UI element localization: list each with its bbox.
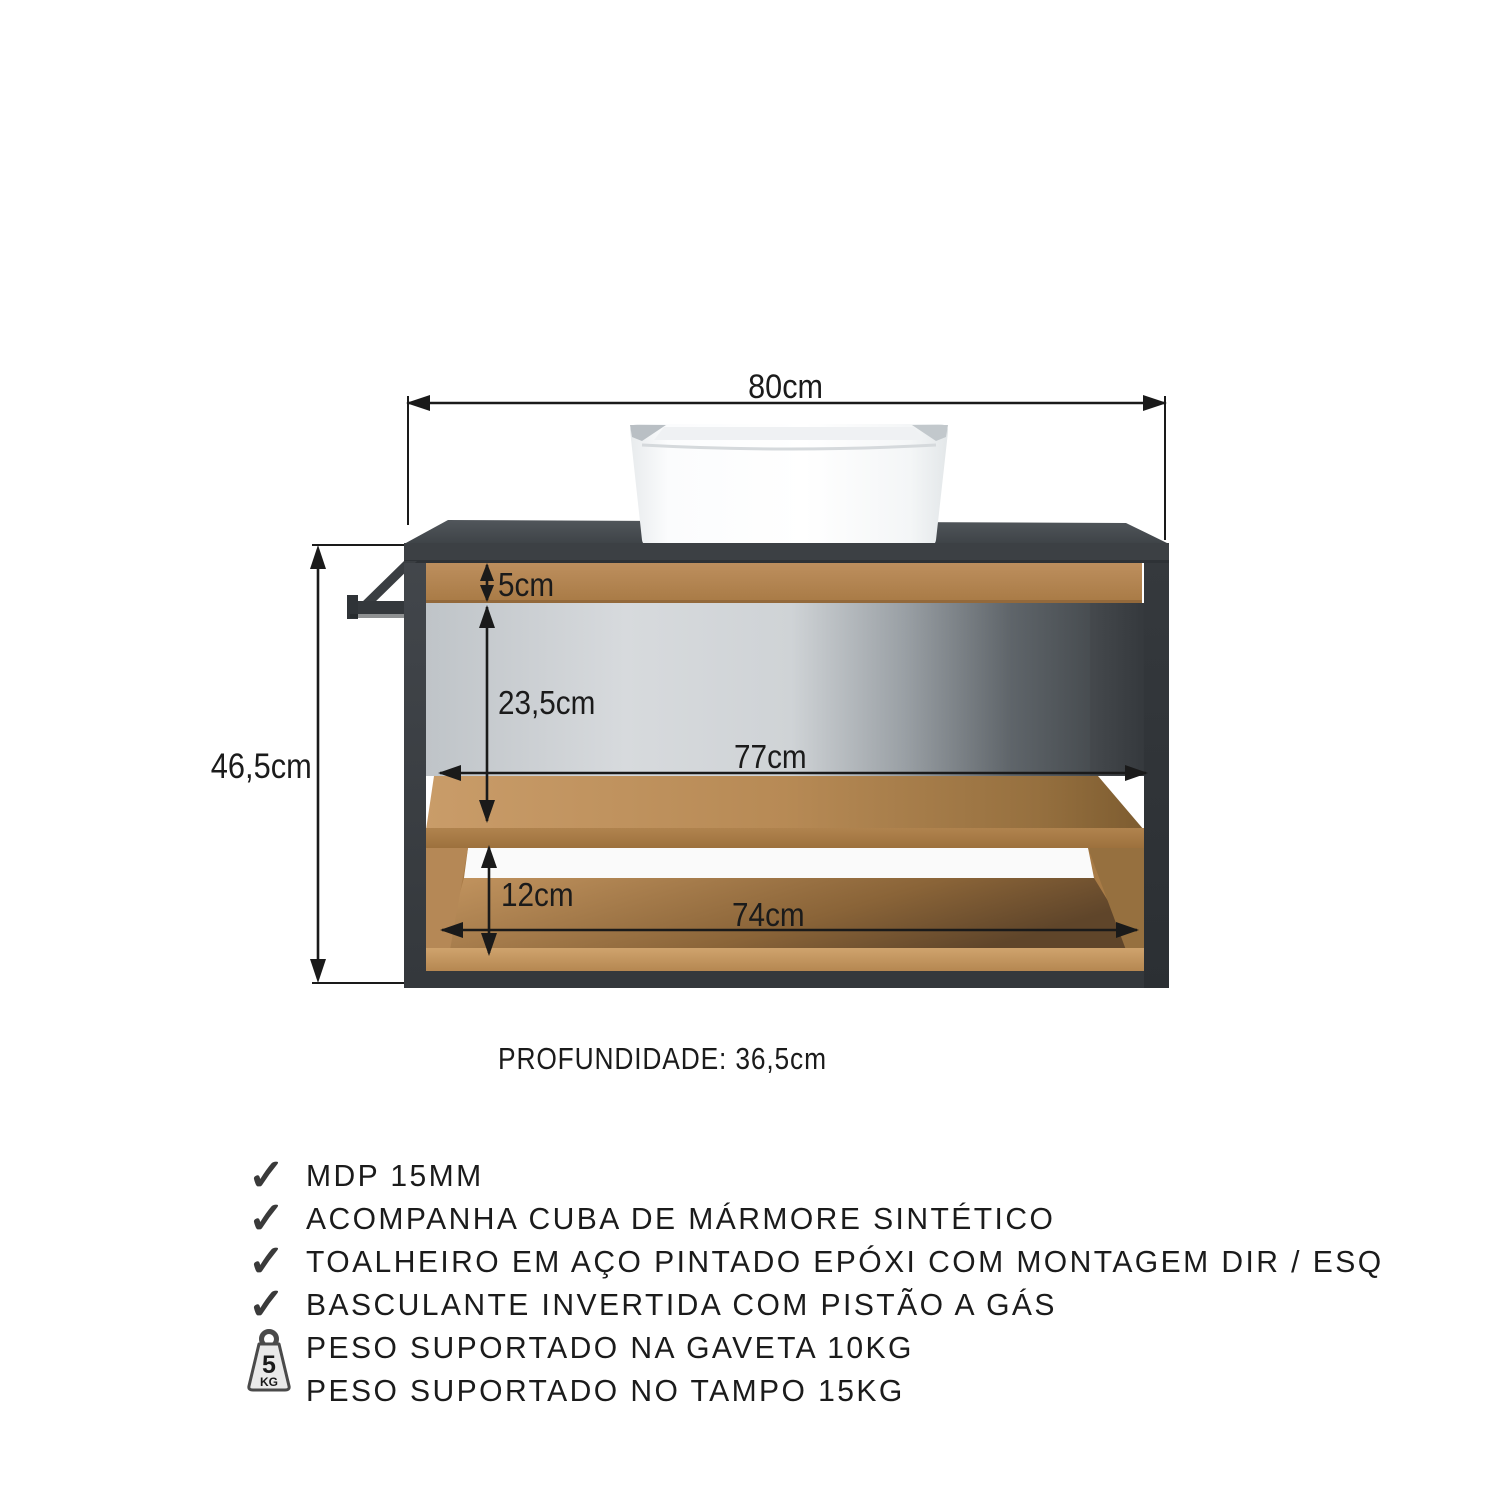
feature-item: PESO SUPORTADO NO TAMPO 15KG [248,1369,1417,1412]
dim-label-drawer-height: 5cm [498,566,560,604]
weight-icon: 5 KG [244,1329,294,1393]
depth-label: PROFUNDIDADE: 36,5cm [412,1041,912,1077]
dim-label-niche-height: 23,5cm [498,684,606,722]
bottom-gray-strip [404,971,1169,988]
towel-rack-shadow [350,614,408,618]
svg-text:KG: KG [260,1375,278,1389]
check-icon: ✓ [248,1199,306,1239]
sink-rim-inner [654,427,924,440]
dim-label-niche-width: 77cm [670,738,870,776]
sink-body [630,424,948,547]
feature-item: ✓ BASCULANTE INVERTIDA COM PISTÃO A GÁS [248,1283,1417,1326]
check-icon: ✓ [248,1242,306,1282]
feature-label: MDP 15MM [306,1158,484,1194]
countertop-front-edge [404,560,1169,563]
dim-label-width-top: 80cm [686,368,886,407]
right-side-panel [1144,563,1169,988]
product-dimension-infographic: 80cm 46,5cm 5cm 23,5cm 77cm 12cm 74cm PR… [0,0,1500,1500]
dim-label-height-left: 46,5cm [152,747,312,787]
left-side-panel [404,563,426,988]
feature-item: ✓ ACOMPANHA CUBA DE MÁRMORE SINTÉTICO [248,1197,1417,1240]
feature-item: ✓ MDP 15MM [248,1154,1417,1197]
feature-label: BASCULANTE INVERTIDA COM PISTÃO A GÁS [306,1287,1057,1323]
feature-label: ACOMPANHA CUBA DE MÁRMORE SINTÉTICO [306,1201,1055,1237]
dim-label-lower-niche-height: 12cm [501,876,582,914]
feature-item: PESO SUPORTADO NA GAVETA 10KG [248,1326,1417,1369]
feature-item: ✓ TOALHEIRO EM AÇO PINTADO EPÓXI COM MON… [248,1240,1417,1283]
feature-label: TOALHEIRO EM AÇO PINTADO EPÓXI COM MONTA… [306,1244,1384,1280]
towel-rack-bar [350,601,408,614]
check-icon: ✓ [248,1285,306,1325]
feature-label: PESO SUPORTADO NO TAMPO 15KG [306,1373,905,1409]
vessel-sink [630,424,948,547]
lower-niche-back [464,848,1094,878]
feature-label: PESO SUPORTADO NA GAVETA 10KG [306,1330,914,1366]
bottom-rail-wood [426,948,1144,973]
shelf-front [426,828,1144,848]
shelf-top-surface [426,776,1144,830]
feature-list: ✓ MDP 15MM ✓ ACOMPANHA CUBA DE MÁRMORE S… [248,1154,1417,1412]
dim-label-lower-niche-width: 74cm [668,896,868,934]
niche-right-wall [1090,603,1144,776]
check-icon: ✓ [248,1156,306,1196]
